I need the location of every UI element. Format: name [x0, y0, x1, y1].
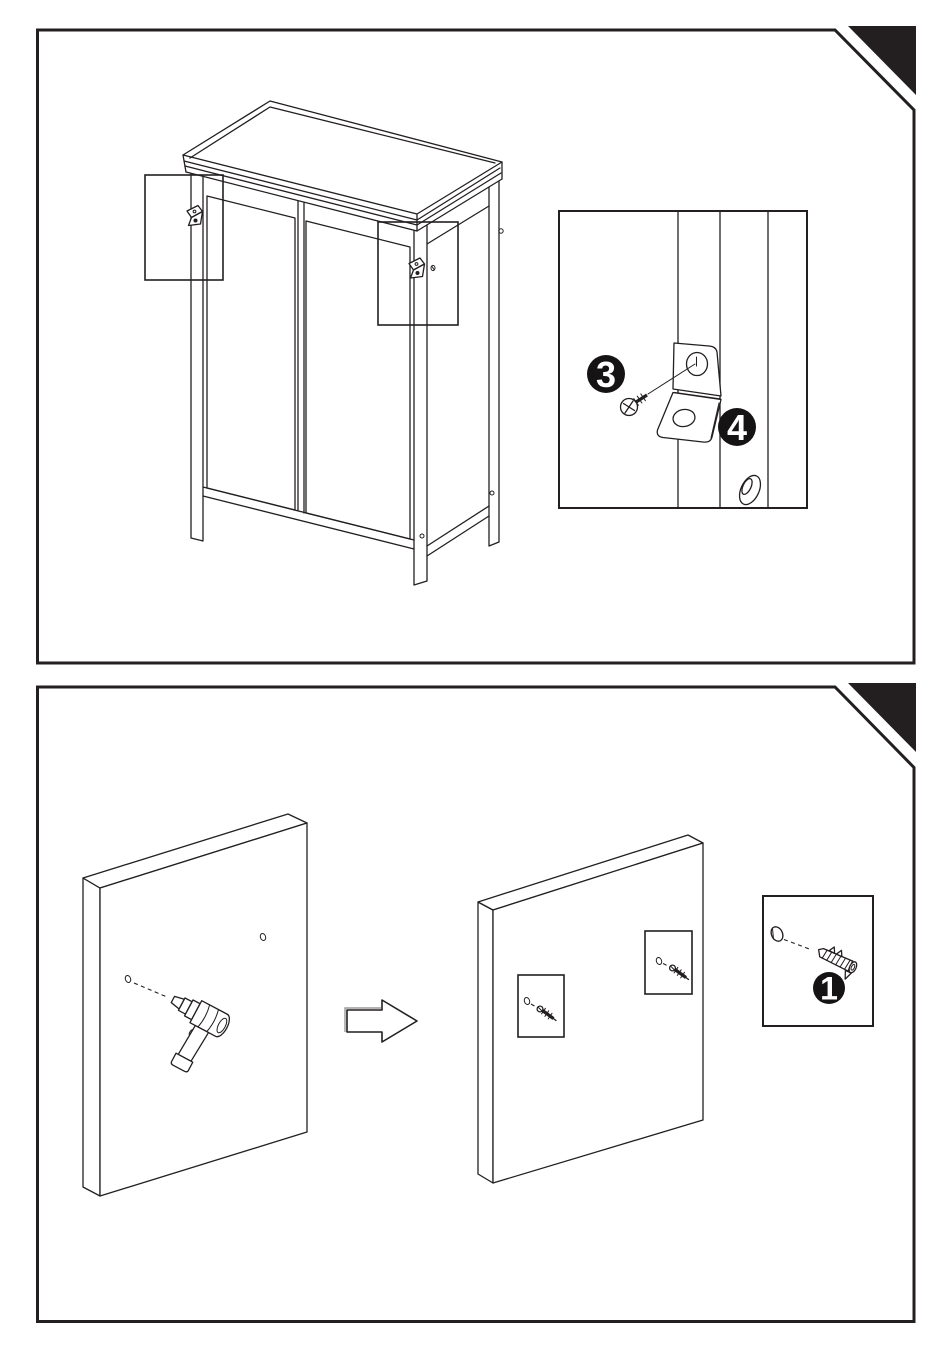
- panel-step-brackets: 3 4: [38, 26, 917, 663]
- badge-1-number: 1: [820, 971, 838, 1007]
- cabinet-illustration: [183, 101, 503, 585]
- wall-panel-drilling: [83, 814, 307, 1196]
- panel-step-wall-anchors: 1: [38, 683, 917, 1322]
- badge-3-number: 3: [596, 354, 616, 395]
- wall-panel-anchored: [478, 835, 703, 1183]
- l-bracket-mini-icon: [409, 258, 435, 278]
- instruction-sheet: 3 4: [0, 0, 950, 1353]
- badge-4-number: 4: [727, 407, 747, 448]
- anchor-detail-box: 1: [763, 896, 873, 1026]
- bracket-detail-box: 3 4: [559, 211, 807, 508]
- cabinet-door-left: [207, 196, 295, 510]
- corner-fold-icon: [848, 683, 916, 752]
- direction-arrow-icon: [345, 1000, 417, 1042]
- screw-hole-dot: [420, 534, 424, 538]
- screw-hole-dot: [490, 491, 494, 495]
- corner-fold-icon: [848, 26, 916, 95]
- l-bracket-mini-icon: [187, 206, 203, 226]
- cabinet-door-right: [306, 221, 410, 539]
